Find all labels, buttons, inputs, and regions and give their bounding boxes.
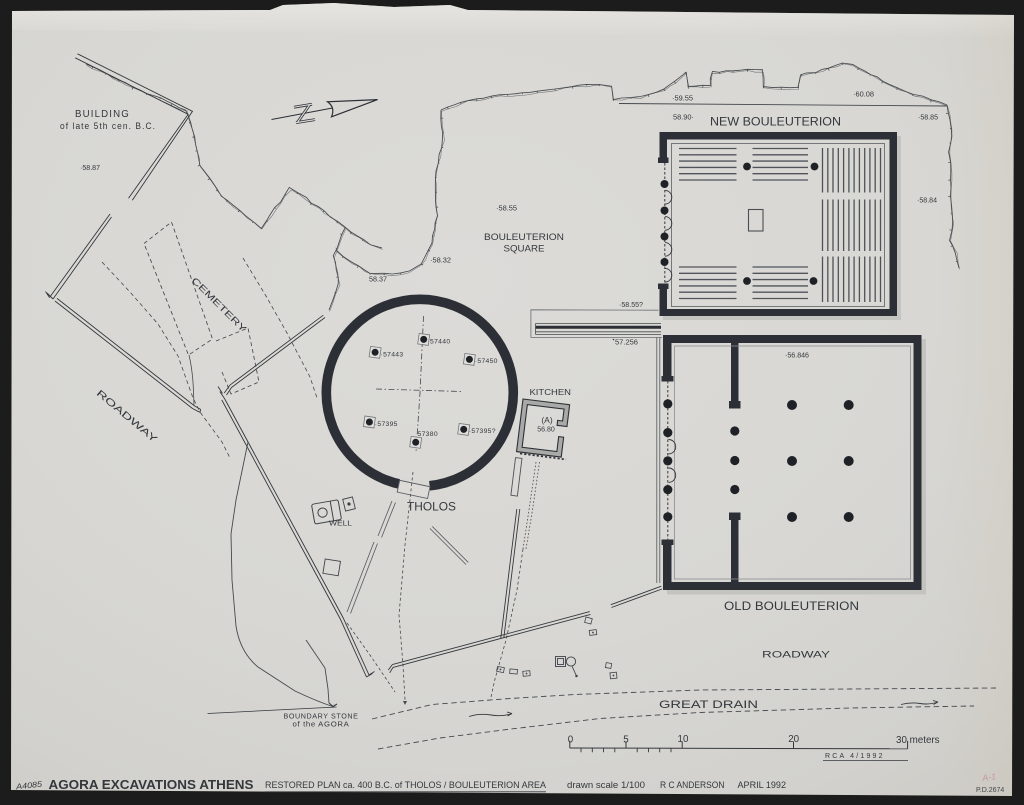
svg-text:58.37: 58.37 <box>369 277 387 284</box>
svg-text:R C ANDERSON: R C ANDERSON <box>660 780 725 791</box>
svg-text:10: 10 <box>678 734 689 745</box>
svg-text:30 meters: 30 meters <box>896 735 940 746</box>
svg-text:ROADWAY: ROADWAY <box>762 650 831 661</box>
svg-text:RCA 4/1992: RCA 4/1992 <box>825 753 885 760</box>
svg-text:56.80: 56.80 <box>537 427 555 434</box>
svg-text:RESTORED PLAN ca. 400 B.C.: RESTORED PLAN ca. 400 B.C. of THOLOS / B… <box>265 780 547 791</box>
svg-text:57380: 57380 <box>418 431 438 438</box>
svg-text:·58.55?: ·58.55? <box>619 302 643 309</box>
svg-text:·60.08: ·60.08 <box>853 92 874 99</box>
svg-text:THOLOS: THOLOS <box>407 500 456 514</box>
svg-text:APRIL 1992: APRIL 1992 <box>738 780 787 791</box>
svg-text:·58.32: ·58.32 <box>430 258 451 265</box>
svg-text:AGORA EXCAVATIONS ATHENS: AGORA EXCAVATIONS ATHENS <box>49 777 254 792</box>
svg-text:SQUARE: SQUARE <box>504 244 545 254</box>
svg-text:NEW BOULEUTERION: NEW BOULEUTERION <box>710 115 841 129</box>
svg-text:of late 5th cen. B.C.: of late 5th cen. B.C. <box>60 121 156 132</box>
svg-text:P.D.2674: P.D.2674 <box>976 787 1004 794</box>
svg-text:(A): (A) <box>541 415 553 425</box>
svg-text:·58.55: ·58.55 <box>496 206 517 213</box>
svg-text:·57450: ·57450 <box>475 358 498 365</box>
svg-text:of the AGORA: of the AGORA <box>293 720 350 729</box>
svg-text:·57443: ·57443 <box>381 352 404 359</box>
svg-text:·56.846: ·56.846 <box>785 353 809 360</box>
svg-text:57.256: 57.256 <box>615 340 638 347</box>
svg-text:0: 0 <box>568 735 574 746</box>
svg-text:drawn scale 1/100: drawn scale 1/100 <box>567 780 645 791</box>
svg-text:57440: 57440 <box>430 339 450 346</box>
svg-text:BOULEUTERION: BOULEUTERION <box>484 232 564 242</box>
svg-text:KITCHEN: KITCHEN <box>530 387 572 397</box>
svg-text:·58.87: ·58.87 <box>80 165 100 172</box>
svg-text:5: 5 <box>623 735 629 746</box>
svg-text:A-1: A-1 <box>981 771 997 783</box>
svg-text:·58.84: ·58.84 <box>917 198 937 205</box>
svg-text:·57395: ·57395 <box>375 421 398 428</box>
svg-text:·58.85: ·58.85 <box>918 115 938 122</box>
svg-text:·57395?: ·57395? <box>469 428 496 435</box>
svg-text:58.90·: 58.90· <box>673 115 694 122</box>
svg-text:BUILDING: BUILDING <box>75 109 130 120</box>
svg-text:·59.55: ·59.55 <box>672 96 693 103</box>
svg-text:OLD BOULEUTERION: OLD BOULEUTERION <box>724 599 859 613</box>
svg-text:20: 20 <box>788 734 799 745</box>
svg-text:GREAT DRAIN: GREAT DRAIN <box>659 699 758 711</box>
svg-text:WELL: WELL <box>329 519 352 528</box>
